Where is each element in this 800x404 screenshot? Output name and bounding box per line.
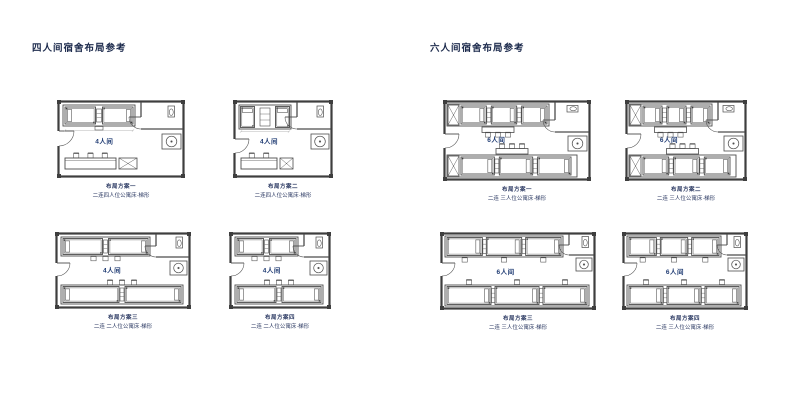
plan-caption-subtitle: 二连 二人位公寓床·梯形 [55,322,191,330]
room-label: 4人间 [263,266,281,275]
room-label: 6人间 [666,267,684,276]
section-title-four-person: 四人间宿舍布局参考 [32,40,127,54]
plan-caption-subtitle: 二连四人位公寓床·梯形 [57,191,185,199]
plan-caption-subtitle: 二连 三人位公寓床·梯形 [625,194,747,202]
plan-caption-title: 布局方案四 [229,313,331,321]
floor-plan-card: 4人间布局方案四二连 二人位公寓床·梯形 [229,232,331,330]
plan-caption-title: 布局方案四 [622,314,748,322]
room-label: 6人间 [660,135,678,144]
plan-caption-title: 布局方案二 [625,185,747,193]
plan-caption-subtitle: 二连 二人位公寓床·梯形 [229,322,331,330]
floor-plan-card: 6人间布局方案三二连 三人位公寓床·梯形 [440,232,596,331]
floor-plan-drawing: 4人间 [55,232,191,309]
floor-plan-card: 6人间布局方案二二连 三人位公寓床·梯形 [625,100,747,202]
plan-caption-title: 布局方案二 [233,182,333,190]
room-label: 6人间 [496,267,514,276]
plan-caption-subtitle: 二连 三人位公寓床·梯形 [440,323,596,331]
plan-caption-title: 布局方案三 [55,313,191,321]
floor-plan-drawing: 4人间 [229,232,331,309]
floor-plan-drawing: 6人间 [443,100,591,181]
room-label: 6人间 [487,135,505,144]
floor-plan-drawing: 6人间 [440,232,596,310]
room-label: 4人间 [260,137,278,146]
floor-plan-drawing: 4人间 [57,100,185,178]
plan-caption-title: 布局方案一 [443,185,591,193]
section-title-six-person: 六人间宿舍布局参考 [430,40,525,54]
plan-caption-subtitle: 二连 三人位公寓床·梯形 [622,323,748,331]
floor-plan-drawing: 6人间 [625,100,747,181]
floor-plan-card: 4人间布局方案三二连 二人位公寓床·梯形 [55,232,191,330]
plan-caption-subtitle: 二连 三人位公寓床·梯形 [443,194,591,202]
document-page: 四人间宿舍布局参考 六人间宿舍布局参考 4人间布局方案一二连四人位公寓床·梯形4… [0,0,800,404]
room-label: 4人间 [95,137,113,146]
floor-plan-drawing: 6人间 [622,232,748,310]
plan-caption-title: 布局方案一 [57,182,185,190]
floor-plan-card: 6人间布局方案四二连 三人位公寓床·梯形 [622,232,748,331]
floor-plan-card: 4人间布局方案二二连四人位公寓床·梯形 [233,100,333,199]
plan-caption-title: 布局方案三 [440,314,596,322]
room-label: 4人间 [103,266,121,275]
floor-plan-drawing: 4人间 [233,100,333,178]
floor-plan-card: 6人间布局方案一二连 三人位公寓床·梯形 [443,100,591,202]
plan-caption-subtitle: 二连四人位公寓床·梯形 [233,191,333,199]
floor-plan-card: 4人间布局方案一二连四人位公寓床·梯形 [57,100,185,199]
